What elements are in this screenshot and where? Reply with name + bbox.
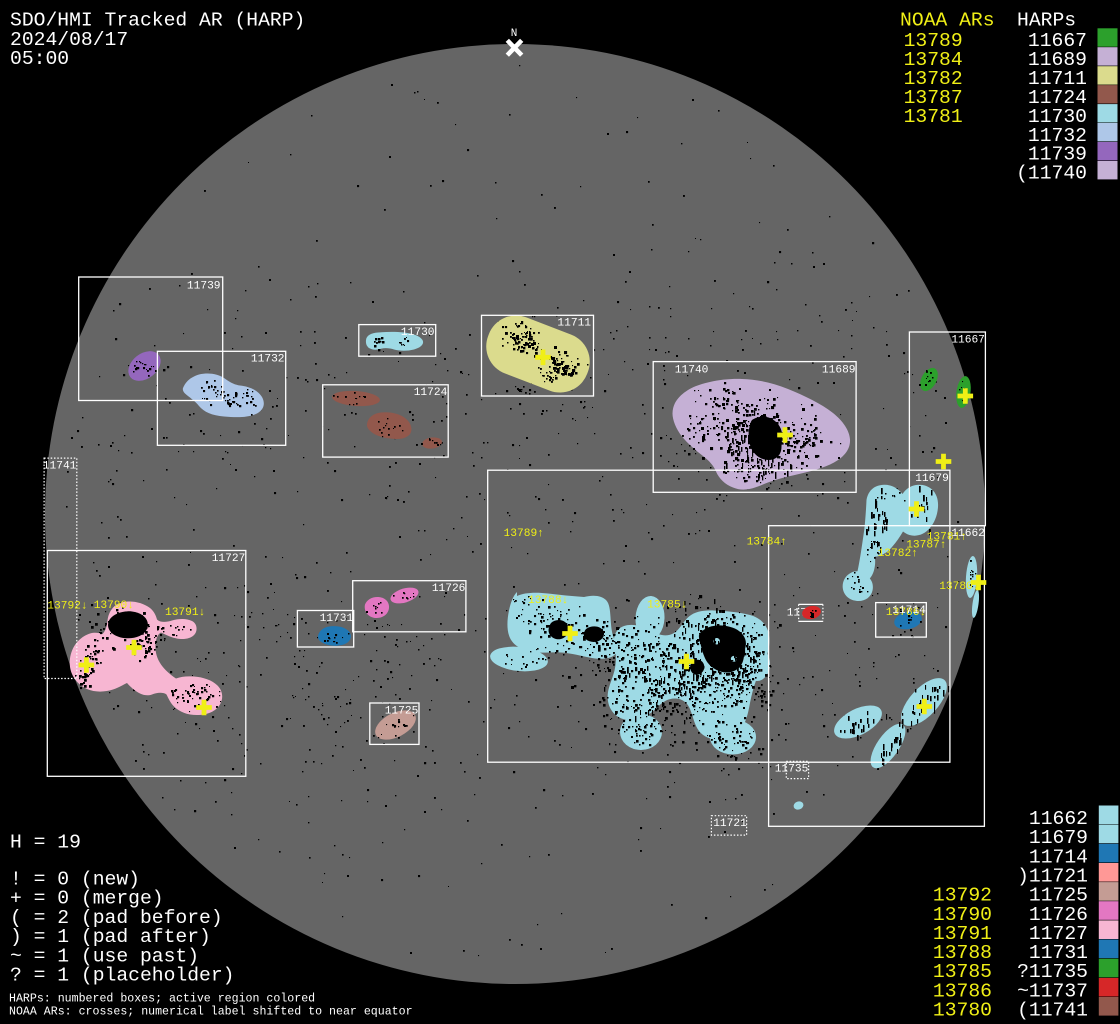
- svg-text:11711: 11711: [557, 318, 591, 330]
- svg-text:11724: 11724: [414, 387, 448, 399]
- svg-text:11679: 11679: [915, 473, 949, 485]
- svg-text:H = 19: H = 19: [10, 832, 81, 854]
- svg-text:(11741: (11741: [1017, 1000, 1088, 1022]
- svg-text:13791↓: 13791↓: [165, 607, 205, 619]
- svg-text:HARPs: HARPs: [1017, 10, 1076, 32]
- svg-text:11735: 11735: [775, 764, 809, 776]
- svg-text:11727: 11727: [212, 553, 246, 565]
- svg-text:13788↓: 13788↓: [528, 595, 568, 607]
- svg-text:13789↑: 13789↑: [504, 528, 544, 540]
- svg-text:NOAA ARs: crosses; numerical l: NOAA ARs: crosses; numerical label shift…: [9, 1006, 413, 1019]
- svg-text:11741: 11741: [43, 461, 77, 473]
- svg-text:11714: 11714: [892, 605, 926, 617]
- svg-text:13782↑: 13782↑: [878, 548, 918, 560]
- svg-text:11732: 11732: [251, 354, 285, 366]
- svg-text:11689: 11689: [822, 365, 856, 377]
- svg-text:11730: 11730: [401, 327, 435, 339]
- svg-text:11725: 11725: [385, 705, 419, 717]
- svg-text:05:00: 05:00: [10, 48, 69, 70]
- svg-text:13780: 13780: [933, 1000, 992, 1022]
- svg-text:11740: 11740: [675, 365, 709, 377]
- svg-text:11667: 11667: [951, 335, 985, 347]
- svg-text:11726: 11726: [432, 583, 466, 595]
- svg-text:13790↓: 13790↓: [94, 600, 134, 612]
- svg-text:? = 1 (placeholder): ? = 1 (placeholder): [10, 965, 234, 987]
- svg-text:13785↓: 13785↓: [647, 600, 687, 612]
- svg-text:NOAA ARs: NOAA ARs: [900, 10, 995, 32]
- svg-text:13792↓: 13792↓: [47, 600, 87, 612]
- svg-text:N: N: [511, 28, 518, 40]
- svg-text:11731: 11731: [320, 613, 354, 625]
- svg-text:HARPs: numbered boxes; active: HARPs: numbered boxes; active region col…: [9, 993, 315, 1006]
- svg-text:13784↑: 13784↑: [747, 537, 787, 549]
- svg-text:11721: 11721: [713, 818, 747, 830]
- svg-text:11739: 11739: [187, 281, 221, 293]
- svg-text:11662: 11662: [951, 528, 985, 540]
- svg-text:(11740: (11740: [1016, 163, 1087, 185]
- svg-text:13781: 13781: [904, 106, 963, 128]
